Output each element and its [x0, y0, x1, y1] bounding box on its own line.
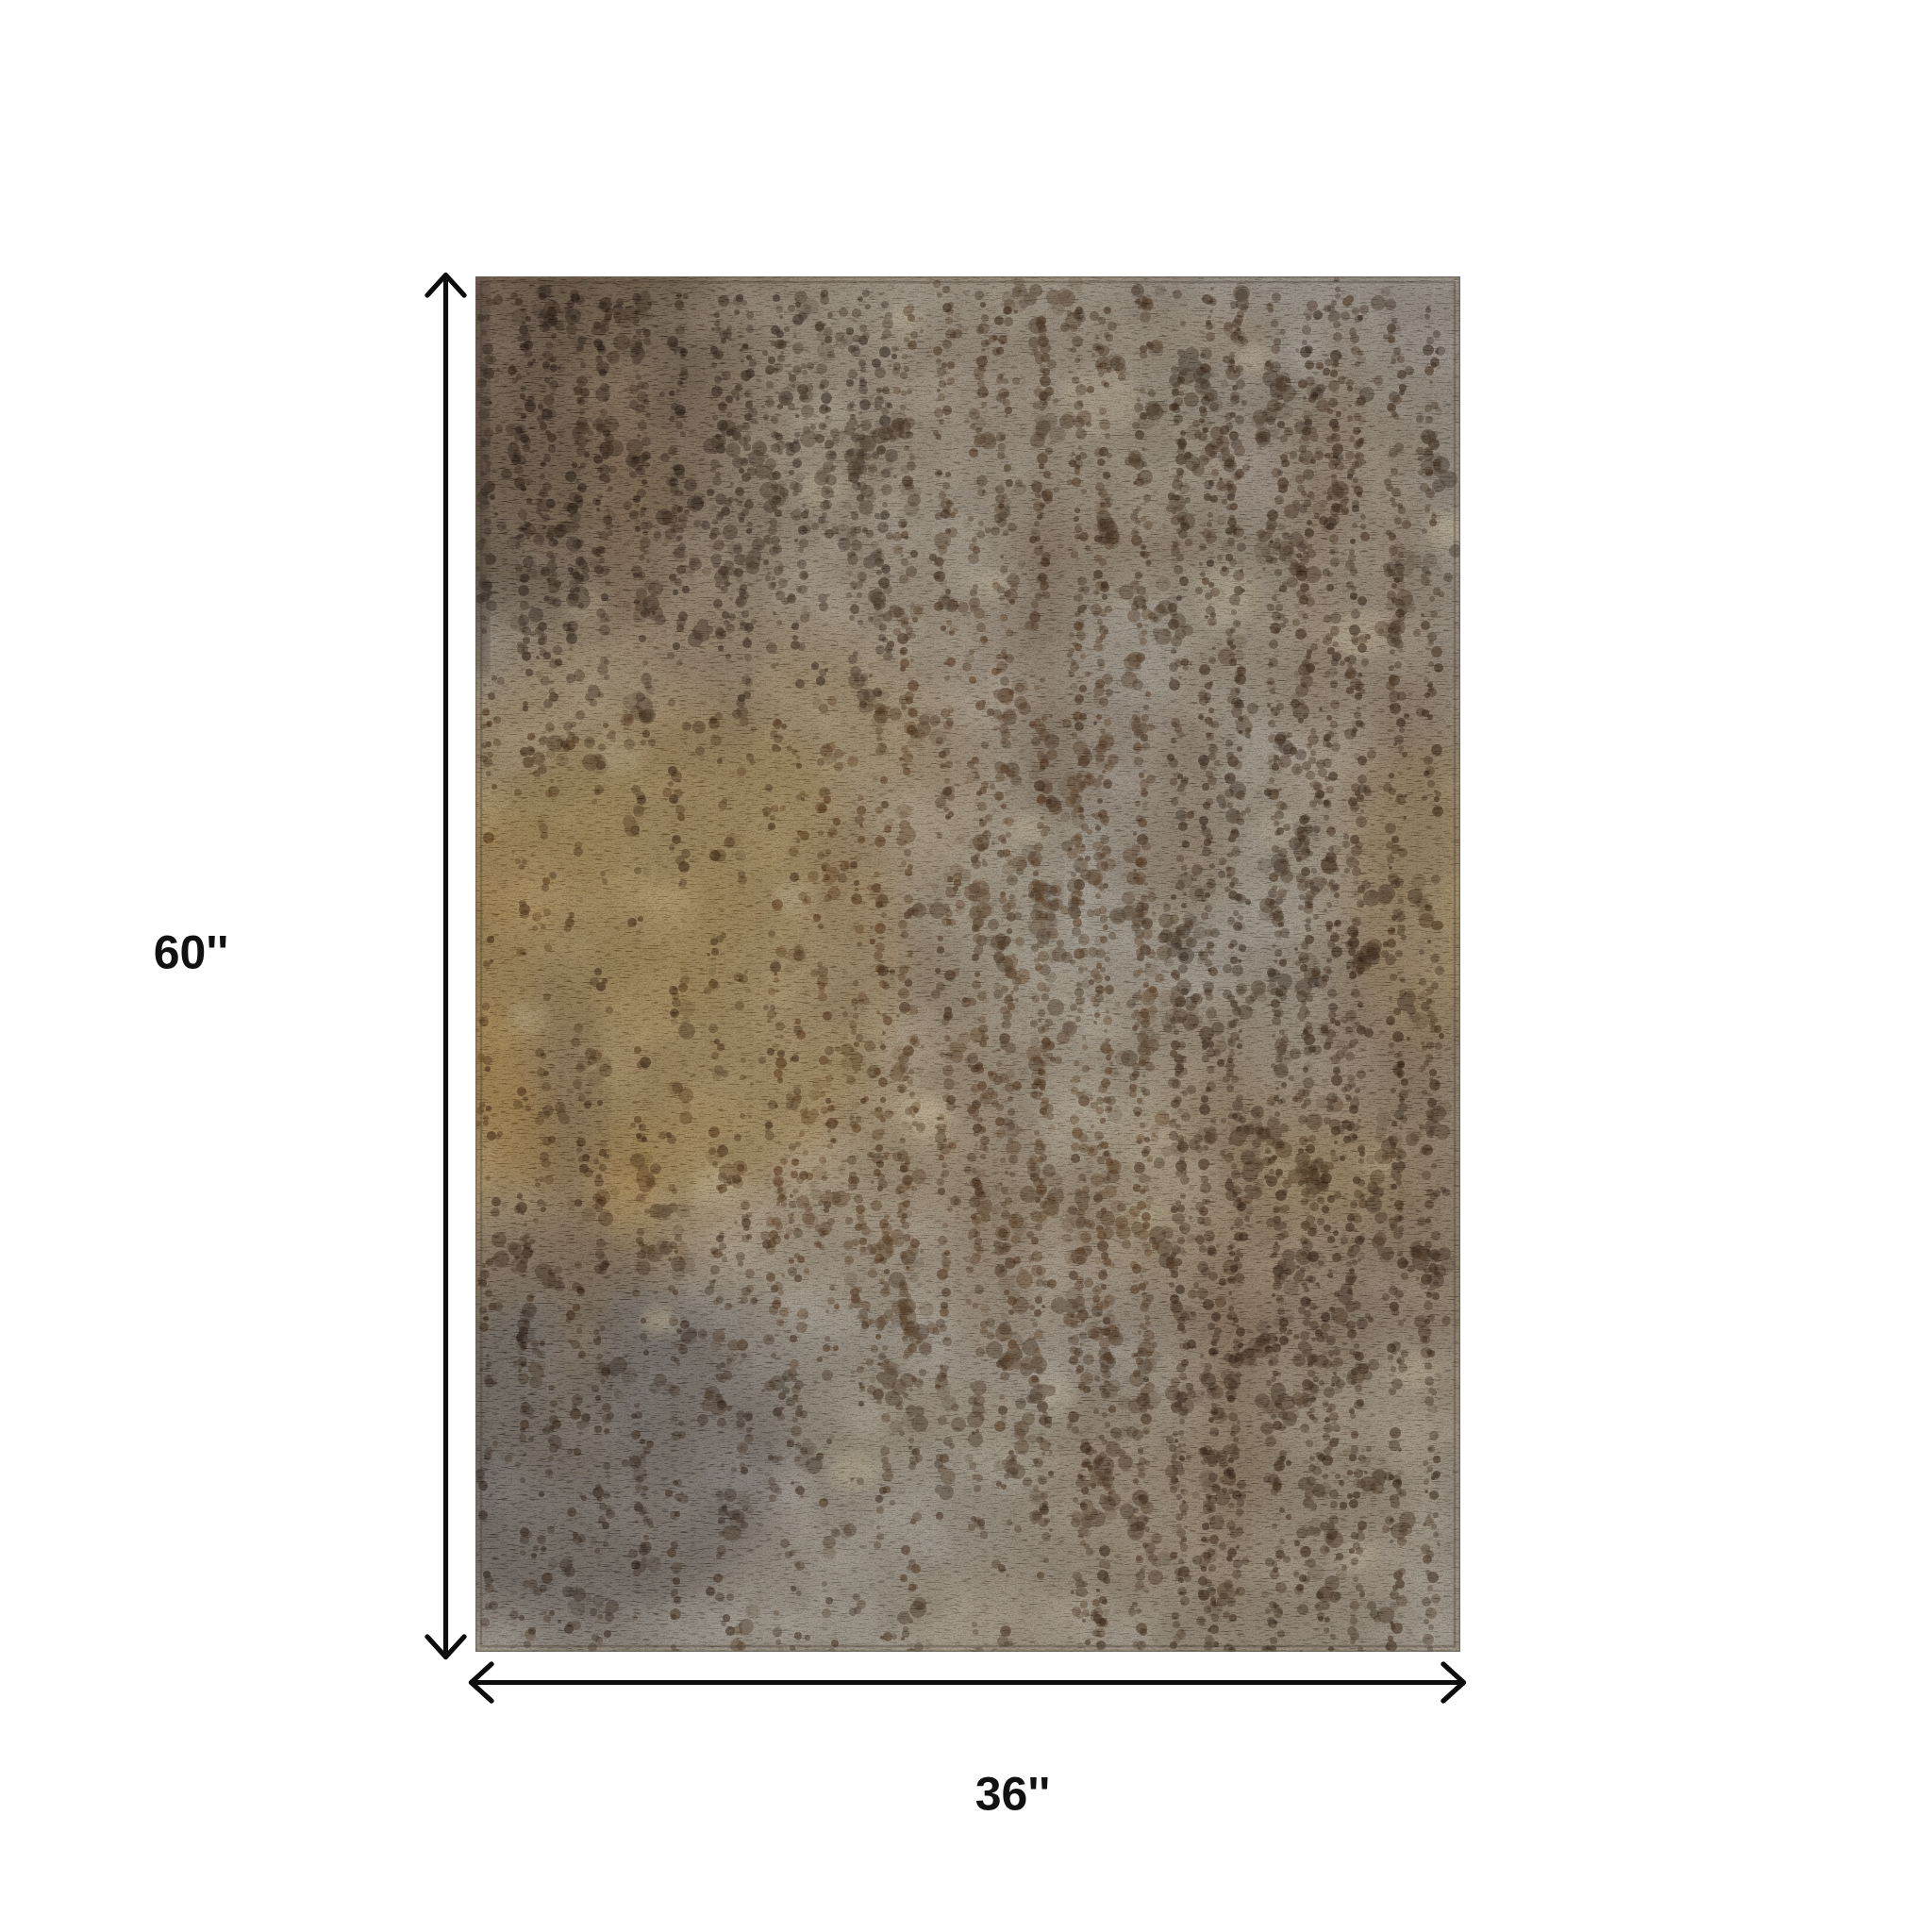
svg-text:36'': 36'' [975, 1768, 1050, 1821]
svg-text:60'': 60'' [154, 926, 228, 979]
